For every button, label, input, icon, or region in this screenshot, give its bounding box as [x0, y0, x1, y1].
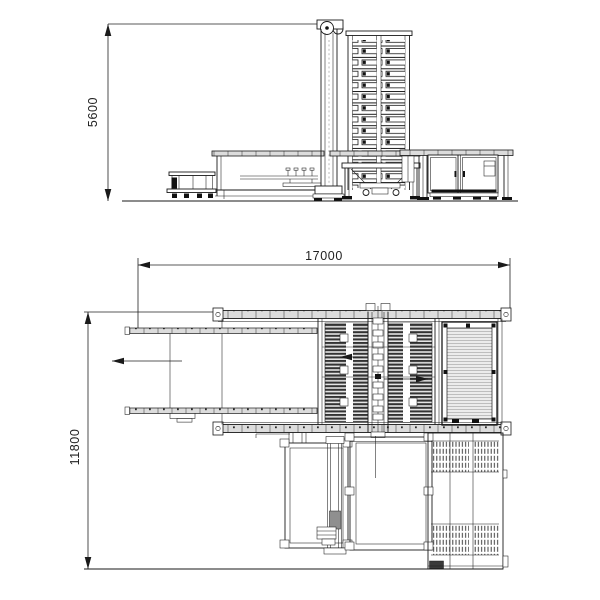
roller-bank-left [325, 323, 368, 422]
roller-bank-right [388, 323, 432, 422]
lower-connectors [256, 433, 376, 479]
plan-view: 17000 11800 [68, 249, 511, 569]
plan-top-rail [213, 304, 511, 322]
interior-conveyor-posts [286, 168, 314, 176]
lift-mast [313, 20, 344, 201]
frame-center-rail [317, 437, 346, 555]
lower-frame-right [345, 433, 433, 550]
dim-label-11800: 11800 [68, 429, 82, 466]
pallet-stack-area [442, 322, 497, 425]
dim-label-17000: 17000 [305, 249, 343, 263]
infeed-hood-conveyor [212, 151, 324, 199]
right-wall-lines [498, 319, 502, 425]
electrical-cabinet-plan [428, 433, 508, 569]
drawing-canvas: 5600 [0, 0, 600, 600]
cad-drawing: 5600 [0, 0, 600, 600]
elevation-view: 5600 [86, 20, 518, 201]
divider-right [435, 319, 439, 425]
dim-label-5600: 5600 [86, 97, 100, 127]
transfer-cart [167, 172, 216, 198]
dimension-width-11800: 11800 [68, 312, 218, 569]
cabinet-vent-slots [431, 441, 499, 555]
lower-frame-left [280, 437, 352, 555]
left-extension-rails [125, 327, 317, 422]
divider-left [318, 319, 322, 425]
